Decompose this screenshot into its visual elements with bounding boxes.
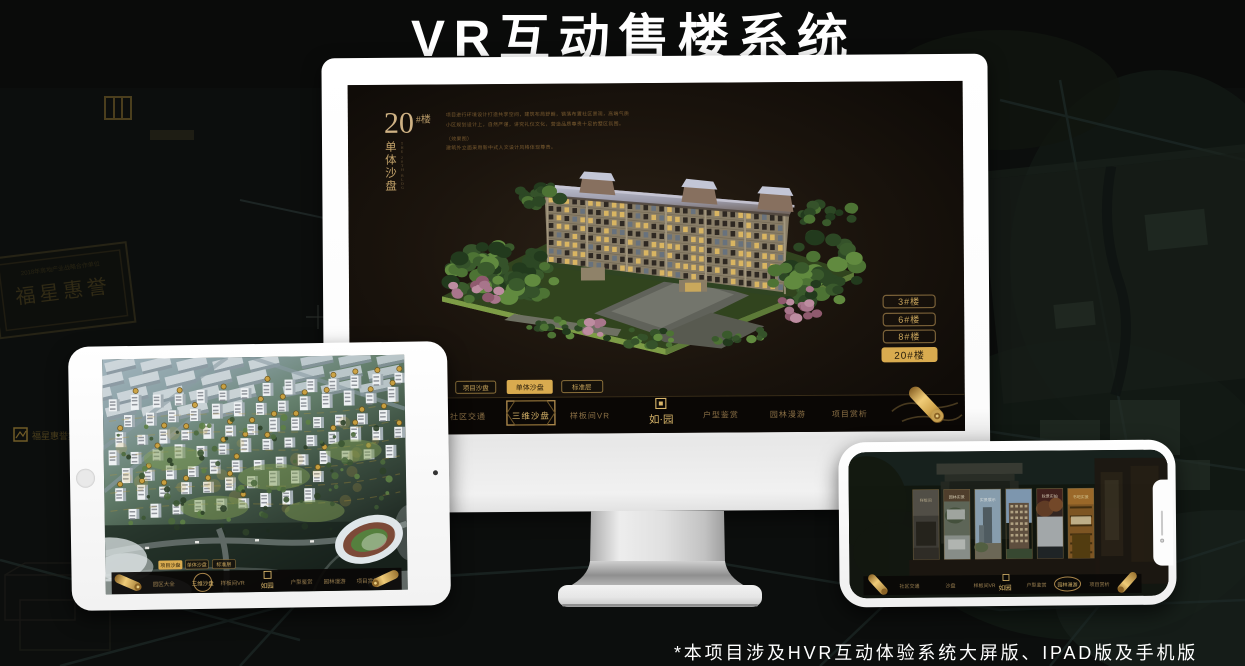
svg-text:如园: 如园 — [999, 583, 1012, 592]
svg-text:6#楼: 6#楼 — [898, 314, 920, 325]
svg-text:#楼: #楼 — [416, 113, 431, 126]
svg-text:标准层: 标准层 — [572, 382, 592, 391]
svg-text:沙: 沙 — [385, 167, 397, 180]
svg-text:20: 20 — [384, 107, 414, 140]
svg-text:体: 体 — [385, 153, 397, 167]
svg-text:样板间VR: 样板间VR — [974, 582, 996, 589]
svg-text:盘: 盘 — [385, 179, 397, 193]
svg-text:项目赏析: 项目赏析 — [832, 409, 868, 419]
svg-text:如园: 如园 — [261, 581, 274, 590]
svg-text:社区交通: 社区交通 — [450, 411, 486, 421]
svg-text:单体沙盘: 单体沙盘 — [187, 561, 207, 568]
svg-text:E: E — [401, 150, 403, 154]
svg-text:园林漫游: 园林漫游 — [1058, 581, 1078, 588]
svg-text:沙盘: 沙盘 — [946, 582, 956, 589]
svg-text:项目沙盘: 项目沙盘 — [160, 562, 180, 569]
svg-text:园林漫游: 园林漫游 — [770, 409, 806, 419]
svg-text:户型鉴赏: 户型鉴赏 — [1027, 582, 1047, 589]
svg-text:户型鉴赏: 户型鉴赏 — [703, 409, 739, 419]
svg-text:单: 单 — [385, 141, 397, 154]
svg-text:3#楼: 3#楼 — [898, 296, 920, 307]
svg-text:8#楼: 8#楼 — [898, 331, 920, 342]
svg-text:单体沙盘: 单体沙盘 — [516, 383, 544, 392]
svg-text:样板间VR: 样板间VR — [570, 410, 610, 420]
svg-text:项目赏析: 项目赏析 — [1089, 581, 1109, 588]
svg-text:20#楼: 20#楼 — [894, 349, 925, 362]
svg-text:社区交通: 社区交通 — [900, 583, 920, 590]
svg-text:三维沙盘: 三维沙盘 — [512, 411, 550, 421]
svg-text:如·园: 如·园 — [649, 413, 674, 426]
svg-text:标准层: 标准层 — [216, 561, 231, 568]
svg-text:项目沙盘: 项目沙盘 — [463, 383, 490, 392]
